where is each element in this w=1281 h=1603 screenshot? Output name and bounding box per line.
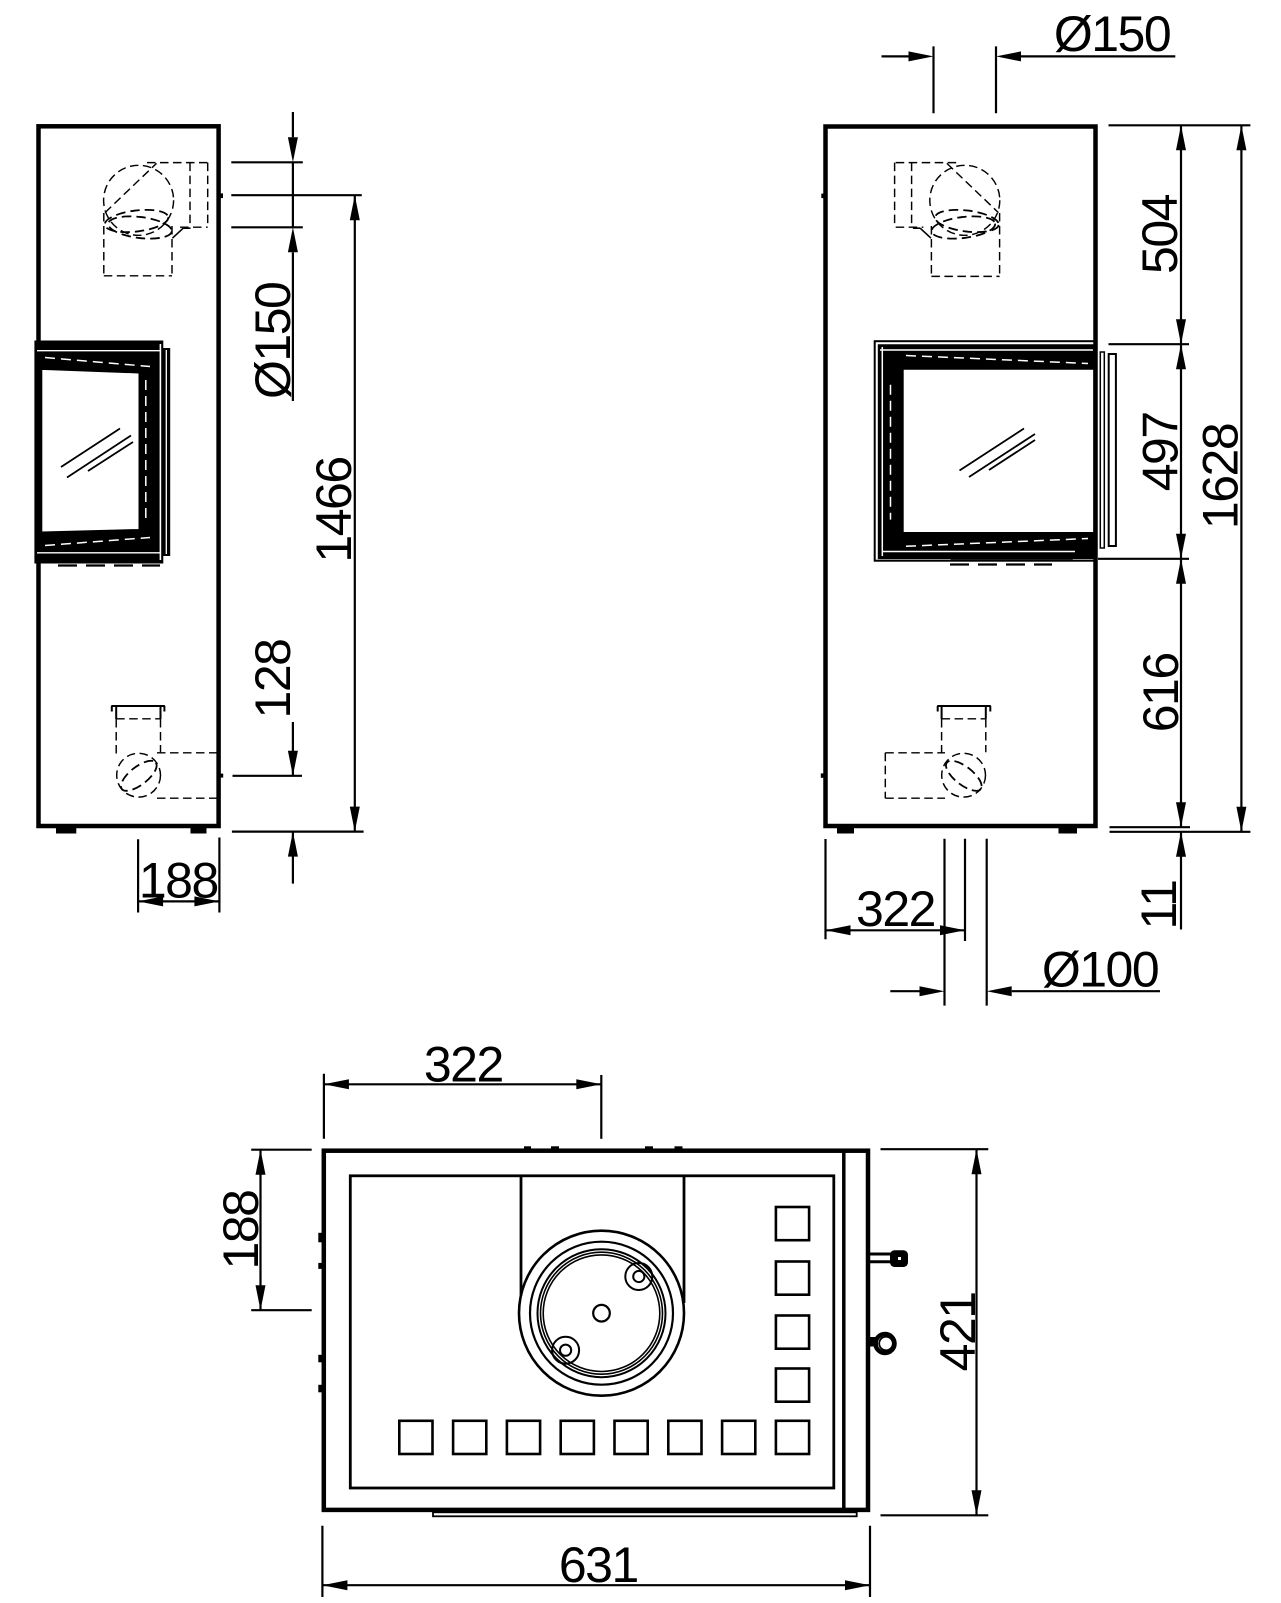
svg-text:Ø150: Ø150 [1054,6,1170,62]
svg-text:11: 11 [1131,881,1187,930]
svg-text:322: 322 [856,881,935,937]
svg-text:497: 497 [1133,412,1189,491]
svg-text:188: 188 [213,1191,269,1270]
svg-text:504: 504 [1132,194,1188,274]
svg-text:616: 616 [1133,653,1189,732]
svg-text:188: 188 [139,853,218,909]
svg-text:322: 322 [424,1036,503,1092]
svg-text:1628: 1628 [1193,424,1249,529]
svg-text:421: 421 [930,1292,986,1371]
svg-text:128: 128 [245,640,301,719]
svg-text:631: 631 [559,1537,638,1593]
svg-text:Ø150: Ø150 [245,283,301,399]
svg-text:Ø100: Ø100 [1042,942,1158,998]
svg-text:1466: 1466 [306,457,362,562]
